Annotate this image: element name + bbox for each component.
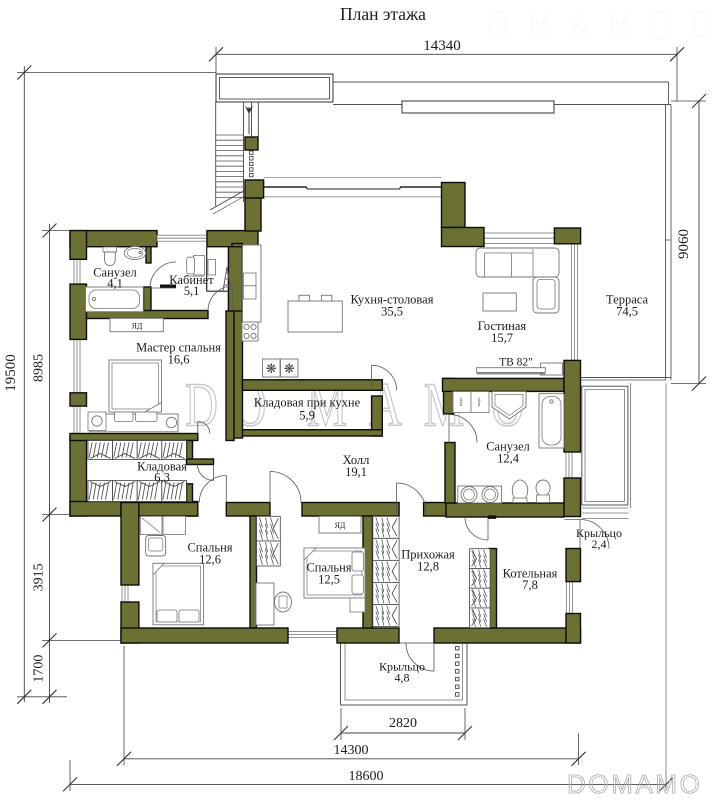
svg-text:1700: 1700: [32, 655, 47, 683]
svg-text:12,5: 12,5: [318, 572, 340, 586]
svg-text:12,6: 12,6: [199, 552, 221, 566]
svg-text:D: D: [690, 2, 711, 47]
svg-text:15,7: 15,7: [491, 331, 513, 345]
svg-text:O: O: [488, 2, 509, 47]
svg-text:4,1: 4,1: [107, 276, 123, 290]
svg-text:5,1: 5,1: [184, 284, 200, 298]
svg-text:2,4: 2,4: [592, 537, 607, 551]
svg-text:❋: ❋: [266, 361, 277, 376]
svg-text:ТВ 82": ТВ 82": [499, 357, 533, 369]
svg-text:водо: водо: [458, 397, 463, 407]
svg-text:8985: 8985: [32, 354, 47, 382]
svg-text:3915: 3915: [32, 563, 47, 591]
svg-text:12,8: 12,8: [417, 559, 439, 573]
svg-text:7,8: 7,8: [522, 578, 538, 592]
svg-text:19500: 19500: [3, 354, 19, 392]
svg-text:14340: 14340: [423, 38, 461, 54]
svg-text:A: A: [570, 2, 591, 47]
svg-text:18600: 18600: [349, 769, 384, 784]
svg-text:водо: водо: [476, 397, 481, 407]
svg-text:M: M: [527, 2, 553, 47]
svg-text:2820: 2820: [389, 716, 417, 731]
svg-text:DOMAMO: DOMAMO: [567, 769, 702, 799]
svg-text:14300: 14300: [334, 743, 369, 758]
svg-text:ЯД: ЯД: [132, 321, 143, 330]
svg-text:74,5: 74,5: [616, 304, 638, 318]
svg-text:9060: 9060: [676, 229, 692, 259]
svg-text:O: O: [650, 2, 671, 47]
svg-text:35,5: 35,5: [381, 304, 403, 318]
svg-text:16,6: 16,6: [168, 352, 190, 366]
svg-text:D: D: [185, 369, 218, 439]
svg-text:4,8: 4,8: [395, 670, 410, 684]
svg-text:5,9: 5,9: [299, 408, 315, 422]
svg-text:12,4: 12,4: [497, 451, 520, 465]
svg-text:19,1: 19,1: [345, 465, 367, 479]
svg-text:M: M: [607, 2, 633, 47]
svg-text:❋: ❋: [284, 361, 295, 376]
svg-text:Кладовая при кухне: Кладовая при кухне: [254, 395, 361, 409]
svg-text:6,3: 6,3: [154, 470, 170, 484]
svg-text:ЯД: ЯД: [335, 521, 346, 530]
svg-text:План этажа: План этажа: [340, 4, 426, 24]
